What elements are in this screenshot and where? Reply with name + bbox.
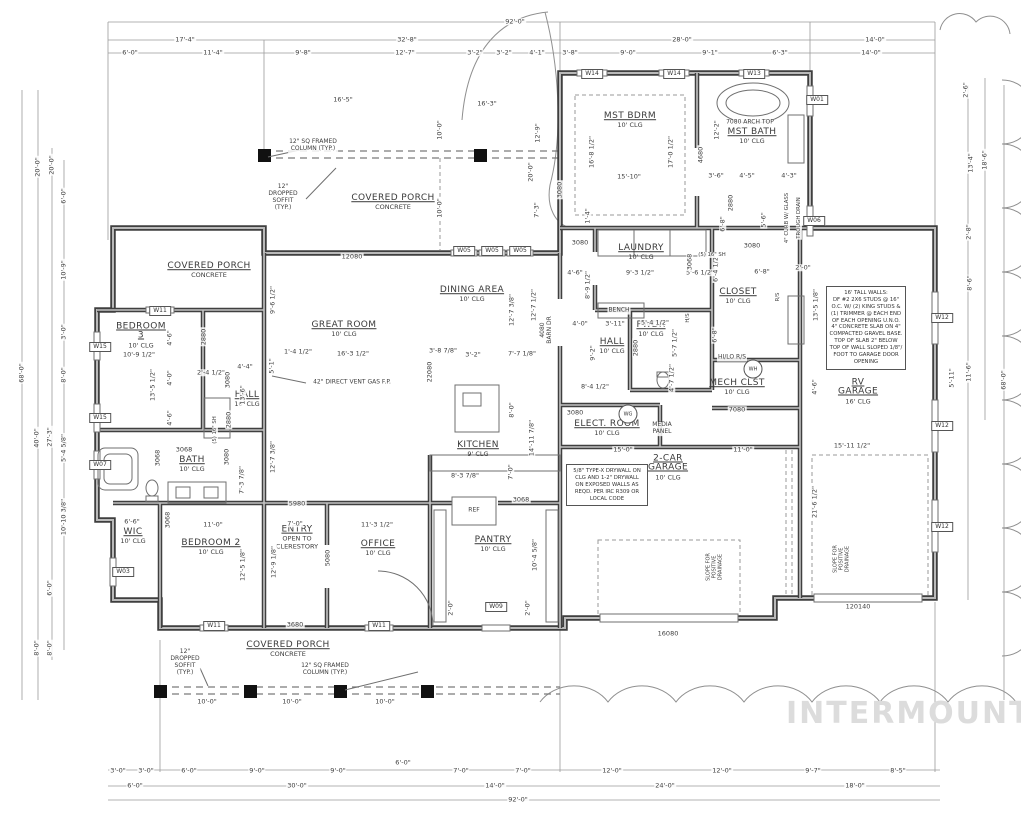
window-tag-w11: W11 xyxy=(368,621,390,631)
dimension-label: 20'-0" xyxy=(34,156,41,178)
dimension-label: 16'-8 1/2" xyxy=(588,135,595,169)
dimension-label: 9'-8" xyxy=(294,49,311,56)
dimension-label: 3680 xyxy=(286,621,305,628)
dimension-label: 12'-9" xyxy=(534,122,541,144)
dimension-label: 9'-0" xyxy=(248,767,265,774)
dimension-label: 10'-0" xyxy=(436,119,443,141)
dimension-label: 22080 xyxy=(426,361,433,384)
dimension-label: 12'-0" xyxy=(711,767,733,774)
room-name: DINING AREA xyxy=(440,286,504,295)
room-name: BEDROOM 3 xyxy=(116,322,166,341)
room-label-great-room: GREAT ROOM10' CLG xyxy=(312,321,377,339)
note-box-1: 5/8" TYPE-X DRYWALL ON CLG AND 1-2" DRYW… xyxy=(566,464,648,506)
dimension-label: 5'-1" xyxy=(268,357,275,374)
dimension-label: 92'-0" xyxy=(504,18,526,25)
dimension-label: 7'-7 1/8" xyxy=(507,350,537,357)
dimension-label: 5'-6" xyxy=(760,211,767,228)
dimension-label: 13'-5 1/8" xyxy=(812,288,819,322)
window-tag-w01: W01 xyxy=(806,95,828,105)
dimension-label: 8'-6" xyxy=(966,274,973,291)
dimension-label: 10'-0" xyxy=(281,698,303,705)
dimension-label: 12'-7 3/8" xyxy=(508,293,515,327)
porch-column xyxy=(154,685,167,698)
room-ceiling-height: 10' CLG xyxy=(719,299,756,306)
room-name: GREAT ROOM xyxy=(312,321,377,330)
window-tag-w11: W11 xyxy=(203,621,225,631)
room-label-bedroom-2: BEDROOM 210' CLG xyxy=(181,539,240,557)
dimension-label: 40'-0" xyxy=(33,427,40,449)
room-ceiling-height: 10' CLG xyxy=(475,547,512,554)
dimension-label: 10'-4 5/8" xyxy=(531,538,538,572)
dimension-label: 3080 xyxy=(556,181,563,200)
window-tag-w14: W14 xyxy=(581,69,603,79)
room-ceiling-height: 10' CLG xyxy=(648,474,688,481)
dimension-label: 9'-1" xyxy=(701,49,718,56)
window-tag-w05: W05 xyxy=(509,246,531,256)
room-ceiling-height: 10' CLG xyxy=(618,255,664,262)
room-name: COVERED PORCH xyxy=(246,641,329,650)
dimension-label: R/S xyxy=(775,292,781,303)
room-name: RV GARAGE xyxy=(838,378,878,397)
kitchen-island xyxy=(455,385,499,432)
dimension-label: SLOPE FOR POSITIVE DRAINAGE xyxy=(833,544,850,574)
dimension-label: 10'-0" xyxy=(374,698,396,705)
floor-plan-canvas: MST BDRM10' CLGMST BATH10' CLGLAUNDRY10'… xyxy=(0,0,1021,822)
dimension-label: 6'-3" xyxy=(771,49,788,56)
dimension-label: 10'-0" xyxy=(436,197,443,219)
window-tag-w05: W05 xyxy=(481,246,503,256)
room-name: COVERED PORCH xyxy=(167,262,250,271)
pantry-shelf xyxy=(546,510,558,622)
dimension-label: 42" DIRECT VENT GAS F.P. xyxy=(312,380,392,387)
dimension-label: BENCH xyxy=(607,308,630,315)
window-tag-w05: W05 xyxy=(453,246,475,256)
dimension-label: 3'-8 7/8" xyxy=(428,347,458,354)
dimension-label: 68'-0" xyxy=(1000,369,1007,391)
dimension-label: 4'-6" xyxy=(166,329,173,346)
dimension-label: 8'-5" xyxy=(889,767,906,774)
porch-column xyxy=(334,685,347,698)
room-name: CLOSET xyxy=(719,288,756,297)
dimension-label: 14'-0" xyxy=(864,36,886,43)
dimension-label: 12'-7 1/2" xyxy=(530,288,537,322)
window-tag-w12: W12 xyxy=(931,421,953,431)
room-ceiling-height: 10' CLG xyxy=(636,332,665,339)
room-name: OFFICE xyxy=(361,540,395,549)
dimension-label: H/S xyxy=(685,312,691,323)
window-tag-w13: W13 xyxy=(743,69,765,79)
dimension-label: HI/LO R/S xyxy=(717,355,747,362)
dimension-label: 2880 xyxy=(200,328,207,347)
dimension-label: 7'-0" xyxy=(286,520,303,527)
dimension-label: 7'-0" xyxy=(452,767,469,774)
room-label-hall: HALL10' CLG xyxy=(599,338,624,356)
dimension-label: 12'-9 1/8" xyxy=(270,545,277,579)
room-ceiling-height: 10' CLG xyxy=(116,342,166,349)
dimension-label: 8'-9 1/2" xyxy=(584,270,591,300)
dimension-label: (5) 16" SH xyxy=(212,415,218,444)
room-label-laundry: LAUNDRY10' CLG xyxy=(618,244,664,262)
window-tag-w06: W06 xyxy=(803,216,825,226)
dimension-label: 4'-1" xyxy=(528,49,545,56)
room-ceiling-height: 10' CLG xyxy=(179,467,205,474)
entry-door-arc xyxy=(378,571,433,626)
dimension-label: 4'-7 1/2" xyxy=(668,363,675,393)
dimension-label: 3080 xyxy=(571,239,590,246)
porch-column xyxy=(474,149,487,162)
dimension-label: 6'-8" xyxy=(719,215,726,232)
dimension-label: 11'-3 1/2" xyxy=(360,521,394,528)
room-ceiling-height: CONCRETE xyxy=(167,273,250,280)
dimension-label: 12'-0" xyxy=(601,767,623,774)
room-label-pantry: PANTRY10' CLG xyxy=(475,536,512,554)
window-tag-w14: W14 xyxy=(663,69,685,79)
dimension-label: 14'-0" xyxy=(860,49,882,56)
dimension-label: 16'-3 1/2" xyxy=(336,350,370,357)
porch-column xyxy=(421,685,434,698)
window-tag-w07: W07 xyxy=(89,460,111,470)
room-ceiling-height: CONCRETE xyxy=(351,205,434,212)
dimension-label: 6'-6" xyxy=(123,518,140,525)
dimension-label: 7'-3" xyxy=(533,201,540,218)
dimension-label: 9'-0" xyxy=(619,49,636,56)
dimension-label: 20'-0" xyxy=(527,161,534,183)
dimension-label: 68'-0" xyxy=(18,362,25,384)
room-label-mech-clst: MECH CLST10' CLG xyxy=(709,379,764,397)
room-ceiling-height: CONCRETE xyxy=(246,652,329,659)
room-ceiling-height: 10' CLG xyxy=(604,123,656,130)
dimension-label: 5'-4 1/2" xyxy=(640,319,670,326)
dimension-label: 14'-11 7/8" xyxy=(528,419,535,457)
room-ceiling-height: 10' CLG xyxy=(120,539,145,546)
dimension-label: 15'-10" xyxy=(616,173,642,180)
dimension-label: 8'-0" xyxy=(508,401,515,418)
room-label-office: OFFICE10' CLG xyxy=(361,540,395,558)
dimension-label: 16'-5" xyxy=(332,96,354,103)
dimension-label: 28'-0" xyxy=(671,36,693,43)
dimension-label: TROUGH DRAIN xyxy=(796,196,802,239)
dimension-label: 2880 xyxy=(632,339,639,358)
dimension-label: 21'-6 1/2" xyxy=(811,485,818,519)
dimension-label: 7'-0" xyxy=(507,463,514,480)
dimension-label: 5'-7 1/2" xyxy=(671,328,678,358)
dimension-label: 4'-0" xyxy=(571,320,588,327)
note-box-0: 16' TALL WALLS: DF #2 2X6 STUDS @ 16" O.… xyxy=(826,286,906,370)
dimension-label: 4'-6" xyxy=(811,378,818,395)
dimension-label: 1'-4 1/2" xyxy=(283,348,313,355)
dimension-label: 6'-0" xyxy=(46,579,53,596)
room-ceiling-height: 10' CLG xyxy=(709,390,764,397)
dimension-label: 18'-6" xyxy=(981,149,988,171)
dimension-label: 8'-0" xyxy=(33,639,40,656)
dimension-label: 9'-2" xyxy=(589,344,596,361)
dimension-label: 3080 xyxy=(224,371,231,390)
dimension-label: 12'-7" xyxy=(394,49,416,56)
dimension-label: 3080 xyxy=(566,409,585,416)
window-tag-w15: W15 xyxy=(89,413,111,423)
room-label-dining-area: DINING AREA10' CLG xyxy=(440,286,504,304)
dimension-label: 1'-4" xyxy=(584,207,591,224)
room-name: 2-CAR GARAGE xyxy=(648,454,688,473)
dimension-label: 6'-8" xyxy=(711,326,718,343)
room-label-bath: BATH10' CLG xyxy=(179,456,205,474)
window-tag-w12: W12 xyxy=(931,313,953,323)
dimension-label: 92'-0" xyxy=(507,796,529,803)
dimension-label: 4'-3" xyxy=(780,172,797,179)
room-ceiling-height: 10' CLG xyxy=(361,551,395,558)
dimension-label: 12'-5 1/8" xyxy=(239,548,246,582)
room-ceiling-height: 10' CLG xyxy=(574,431,639,438)
dimension-label: 2'-8" xyxy=(965,223,972,240)
dimension-label: 12080 xyxy=(341,253,364,260)
dimension-label: 10'-10 3/8" xyxy=(60,498,67,536)
room-label-mst-bath: MST BATH10' CLG xyxy=(728,128,777,146)
dimension-label: 7080 ARCH TOP xyxy=(725,120,775,127)
dimension-label: 3'-0" xyxy=(109,767,126,774)
dimension-label: 6'-0" xyxy=(60,187,67,204)
dimension-label: 12" DROPPED SOFFIT (TYP.) xyxy=(267,184,298,212)
window-tag-w09: W09 xyxy=(485,602,507,612)
room-ceiling-height: 10' CLG xyxy=(599,349,624,356)
dimension-label: 20'-0" xyxy=(48,154,55,176)
dimension-label: 8'-0" xyxy=(46,639,53,656)
room-label-kitchen: KITCHEN9' CLG xyxy=(457,441,499,459)
dimension-label: 12" SQ FRAMED COLUMN (TYP.) xyxy=(288,139,338,153)
dimension-label: 4" CURB W/ GLASS xyxy=(784,192,790,244)
dimension-label: 17'-0 1/2" xyxy=(667,135,674,169)
room-label-closet: CLOSET10' CLG xyxy=(719,288,756,306)
room-name: PANTRY xyxy=(475,536,512,545)
mstbath-vanity xyxy=(788,115,804,163)
dimension-label: 32'-8" xyxy=(396,36,418,43)
room-name: LAUNDRY xyxy=(618,244,664,253)
dimension-label: 3'-2" xyxy=(466,49,483,56)
dimension-label: 3'-0" xyxy=(60,323,67,340)
dimension-label: 2'-0" xyxy=(794,264,811,271)
dimension-label: 2'-4 1/2" xyxy=(196,369,226,376)
dimension-label: 12'-7 3/8" xyxy=(269,440,276,474)
toilet xyxy=(146,480,158,496)
dimension-label: 12" DROPPED SOFFIT (TYP.) xyxy=(169,649,200,677)
room-ceiling-height: 10' CLG xyxy=(440,297,504,304)
dimension-label: 6'-8" xyxy=(753,268,770,275)
dimension-label: 10'-0" xyxy=(196,698,218,705)
room-label-covered-porch: COVERED PORCHCONCRETE xyxy=(167,262,250,280)
dimension-label: 2880 xyxy=(225,411,232,430)
dimension-label: 8'-3 7/8" xyxy=(450,472,480,479)
room-name: COVERED PORCH xyxy=(351,194,434,203)
dimension-label: 13'-5 1/2" xyxy=(149,368,156,402)
room-name: HALL xyxy=(599,338,624,347)
dimension-label: 4680 xyxy=(697,146,704,165)
dimension-label: 3'-2" xyxy=(464,351,481,358)
window-tag-w15: W15 xyxy=(89,342,111,352)
equipment-tag-wh: WH xyxy=(744,360,763,379)
room-ceiling-height: 9' CLG xyxy=(457,452,499,459)
dimension-label: 3'-2" xyxy=(495,49,512,56)
dimension-label: 11'-4" xyxy=(202,49,224,56)
room-ceiling-height: 16' CLG xyxy=(838,398,878,405)
dimension-label: 10'-9" xyxy=(60,259,67,281)
dimension-label: 2880 xyxy=(727,194,734,213)
dimension-label: 5'-4 5/8" xyxy=(60,433,67,463)
dimension-label: 27'-3" xyxy=(46,426,53,448)
room-name: MST BDRM xyxy=(604,112,656,121)
room-ceiling-height: OPEN TO CLERESTORY xyxy=(276,536,318,550)
dimension-label: 6'-0" xyxy=(121,49,138,56)
room-label-rv-garage: RV GARAGE16' CLG xyxy=(838,378,878,405)
room-label-covered-porch: COVERED PORCHCONCRETE xyxy=(351,194,434,212)
dimension-label: 3'-11" xyxy=(604,320,626,327)
dimension-label: 3068 xyxy=(154,449,161,468)
dimension-label: 17'-4" xyxy=(174,36,196,43)
dimension-label: 3080 xyxy=(743,242,762,249)
dimension-label: 13'-6" xyxy=(239,384,246,406)
porch-column xyxy=(244,685,257,698)
dimension-label: 6'-0" xyxy=(394,759,411,766)
dimension-label: 2'-0" xyxy=(524,599,531,616)
dimension-label: 3068 xyxy=(512,496,531,503)
dimension-label: 7'-0" xyxy=(514,767,531,774)
dimension-label: 8'-4 1/2" xyxy=(580,383,610,390)
dimension-label: 4080 BARN DR xyxy=(540,315,554,345)
dimension-label: 5'-11" xyxy=(948,367,955,389)
porch-column xyxy=(258,149,271,162)
dimension-label: 15'-0" xyxy=(612,446,634,453)
dimension-label: MEDIA PANEL xyxy=(651,422,672,436)
room-name: MST BATH xyxy=(728,128,777,137)
dimension-label: REF xyxy=(467,508,480,515)
room-ceiling-height: 10' CLG xyxy=(728,139,777,146)
room-label-mst-bdrm: MST BDRM10' CLG xyxy=(604,112,656,130)
room-ceiling-height: 10' CLG xyxy=(312,332,377,339)
pantry-shelf xyxy=(434,510,446,622)
dimension-label: 9'-7" xyxy=(804,767,821,774)
dimension-label: 15'-11 1/2" xyxy=(833,442,871,449)
dimension-label: 4'-6" xyxy=(166,409,173,426)
dimension-label: 14'-0" xyxy=(484,782,506,789)
room-label-2-car-garage: 2-CAR GARAGE10' CLG xyxy=(648,454,688,481)
master-tub xyxy=(717,83,789,123)
dimension-label: 30'-0" xyxy=(286,782,308,789)
dimension-label: 18'-0" xyxy=(844,782,866,789)
dimension-label: 11'-0" xyxy=(732,446,754,453)
room-name: MECH CLST xyxy=(709,379,764,388)
dimension-label: 16'-3" xyxy=(476,100,498,107)
dimension-label: SLOPE FOR POSITIVE DRAINAGE xyxy=(706,552,723,582)
equipment-tag-wg: WG xyxy=(619,405,638,424)
dimension-label: 4'-5" xyxy=(738,172,755,179)
dimension-label: 3068 xyxy=(175,446,194,453)
room-label-entry: ENTRYOPEN TO CLERESTORY xyxy=(276,526,318,551)
dimension-label: 2'-0" xyxy=(447,599,454,616)
dimension-label: 3'-6" xyxy=(707,172,724,179)
dimension-label: 9'-0" xyxy=(329,767,346,774)
dimension-label: 11'-6" xyxy=(965,361,972,383)
dimension-label: 3'-8" xyxy=(561,49,578,56)
window-tag-w11: W11 xyxy=(149,306,171,316)
dimension-label: 3'-0" xyxy=(137,767,154,774)
dimension-label: 8'-0" xyxy=(60,366,67,383)
watermark: INTERMOUNTAIN xyxy=(786,696,1021,731)
dimension-label: 3080 xyxy=(223,448,230,467)
dimension-label: 7080 xyxy=(728,406,747,413)
room-name: BATH xyxy=(179,456,205,465)
room-ceiling-height: 10' CLG xyxy=(181,550,240,557)
dimension-label: 6'-0" xyxy=(126,782,143,789)
room-name: WIC xyxy=(120,528,145,537)
room-label-bedroom-3: BEDROOM 310' CLG xyxy=(116,322,166,349)
dimension-label: 5080 xyxy=(324,549,331,568)
dimension-label: 12" SQ FRAMED COLUMN (TYP.) xyxy=(300,663,350,677)
dimension-label: 120140 xyxy=(845,603,872,610)
dimension-label: 2'-6" xyxy=(962,81,969,98)
dimension-label: 11'-0" xyxy=(202,521,224,528)
bath-vanity xyxy=(168,482,226,503)
dimension-label: 3068 xyxy=(686,253,693,272)
dimension-label: 16080 xyxy=(657,630,680,637)
room-label-covered-porch: COVERED PORCHCONCRETE xyxy=(246,641,329,659)
dimension-label: 4'-6" xyxy=(566,269,583,276)
dimension-label: 3068 xyxy=(164,511,171,530)
window-tag-w03: W03 xyxy=(112,567,134,577)
dimension-label: (5) 16" SH xyxy=(697,252,726,258)
room-label-wic: WIC10' CLG xyxy=(120,528,145,546)
dimension-label: 9'-6 1/2" xyxy=(269,285,276,315)
dimension-label: 13'-4" xyxy=(967,152,974,174)
dimension-label: 10'-9 1/2" xyxy=(122,351,156,358)
dimension-label: 9'-3 1/2" xyxy=(625,269,655,276)
dimension-label: 24'-0" xyxy=(654,782,676,789)
dimension-label: 4'-4" xyxy=(236,363,253,370)
room-name: BEDROOM 2 xyxy=(181,539,240,548)
dimension-label: 4'-0" xyxy=(166,369,173,386)
dimension-label: 7'-3 7/8" xyxy=(238,465,245,495)
dimension-label: 6'-0" xyxy=(180,767,197,774)
window-tag-w12: W12 xyxy=(931,522,953,532)
room-name: KITCHEN xyxy=(457,441,499,450)
dimension-label: 12'-2" xyxy=(713,119,720,141)
dimension-label: 5980 xyxy=(288,500,307,507)
